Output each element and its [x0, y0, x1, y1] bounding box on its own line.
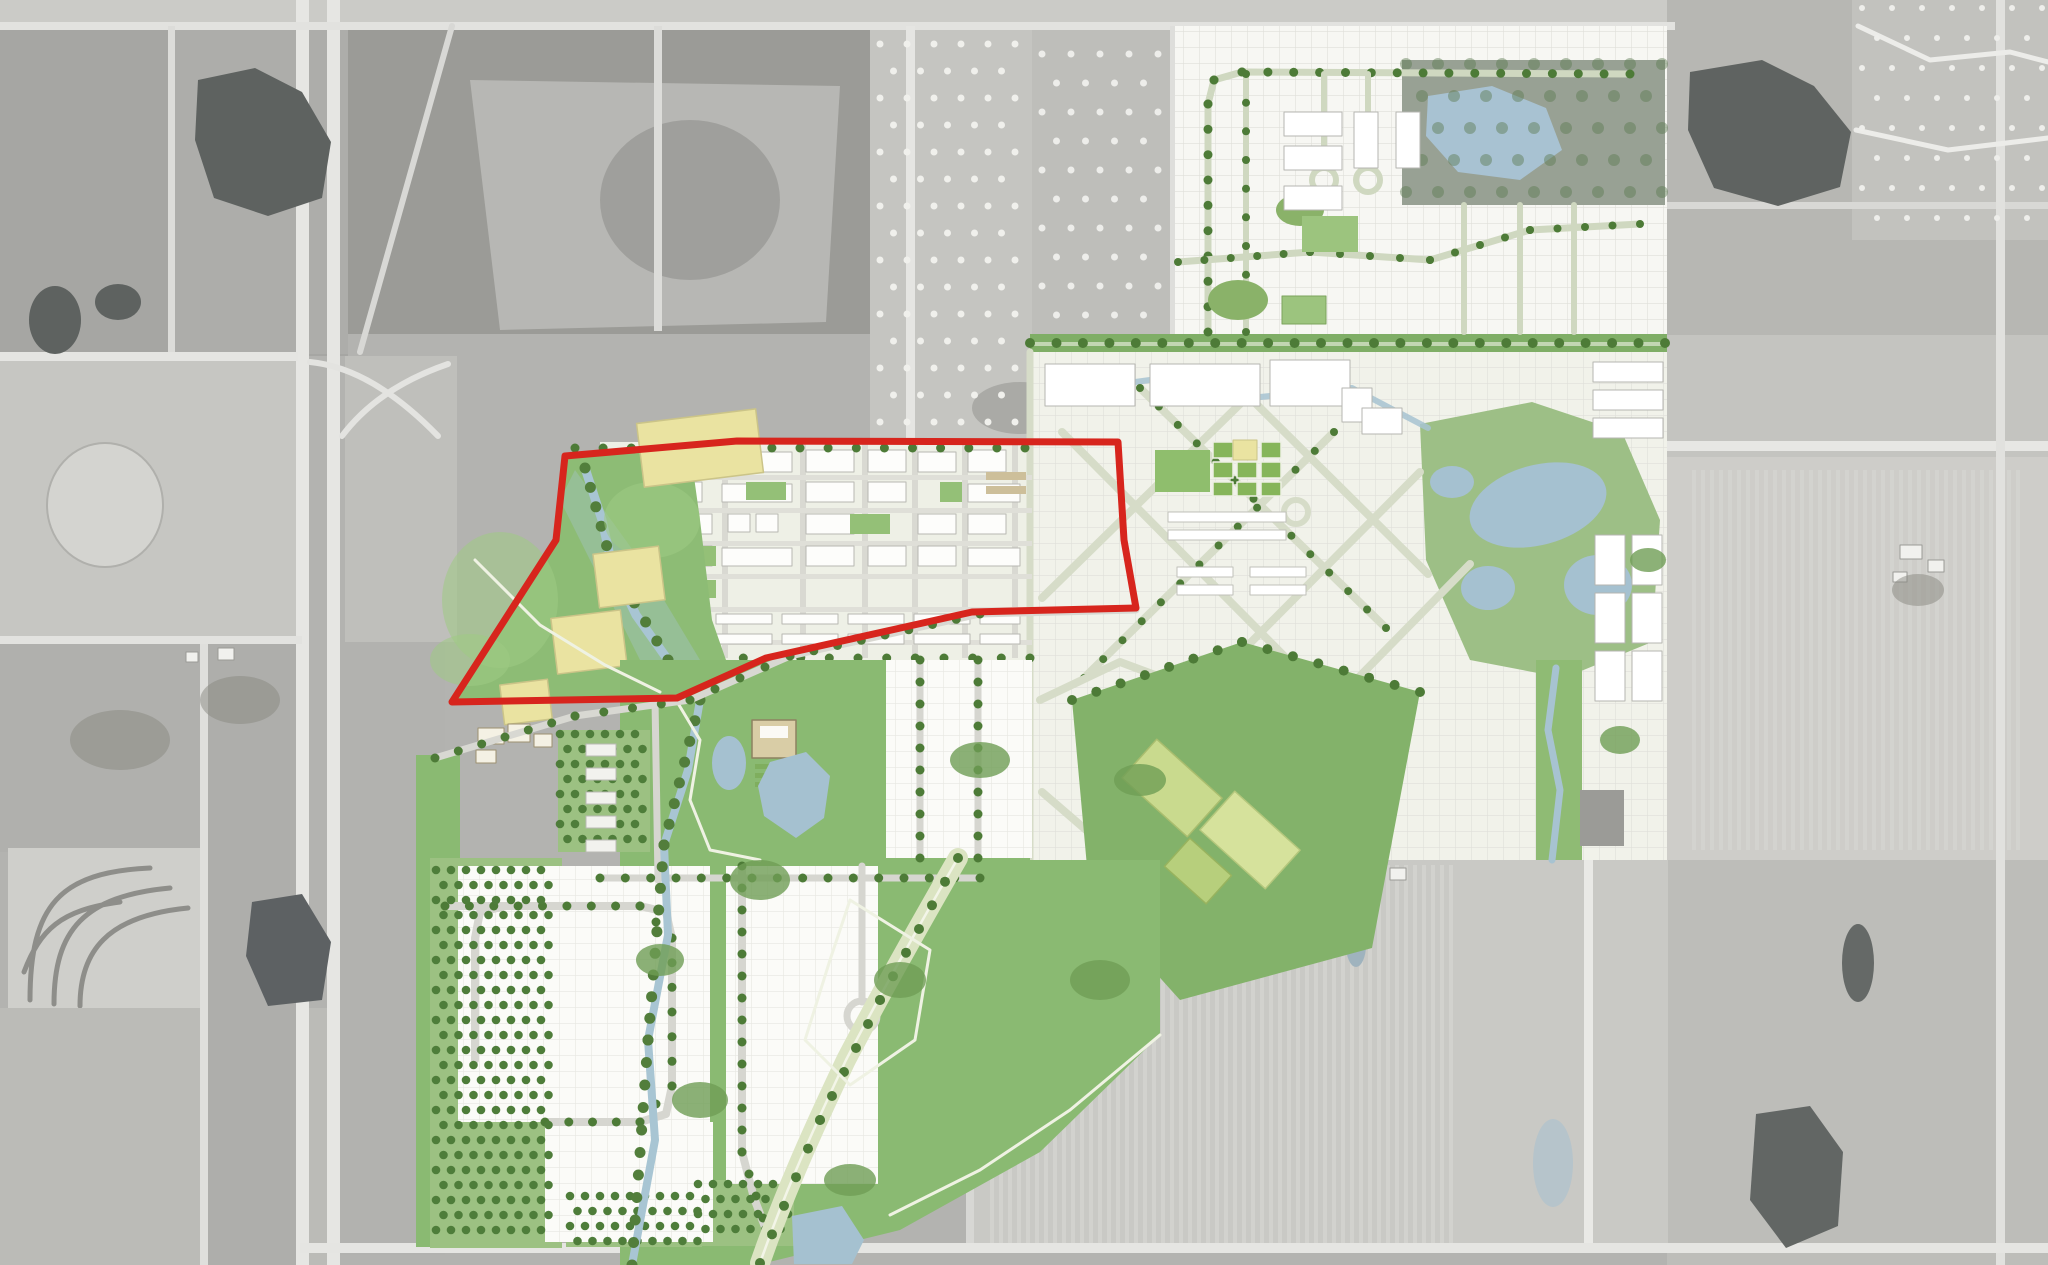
site-plan-screenshot: [0, 0, 2048, 1265]
aerial-farm-circle: [47, 443, 163, 567]
pond-east: [1842, 924, 1874, 1002]
road-town-main: [906, 26, 915, 444]
street-x655: [655, 700, 658, 880]
civic-building-roof: [760, 726, 788, 738]
subdivision-courtyard: [1302, 216, 1358, 252]
map-canvas: [0, 0, 2048, 1265]
reserved-parcel: [1580, 790, 1624, 846]
aerial-e-stripes: [1690, 470, 2020, 850]
map-layers: [0, 0, 2048, 1265]
aerial-e-field1: [1667, 335, 2048, 457]
highway-sb: [327, 0, 340, 1265]
pond-west1: [29, 286, 81, 354]
subdivision-garden: [1282, 296, 1326, 324]
pond-west2: [95, 284, 141, 320]
town-lawn-square: [1155, 450, 1210, 492]
road-far-east: [1996, 0, 2005, 1265]
town-buildings-r3: [652, 514, 1006, 534]
aerial-e-field3: [1667, 860, 2048, 1265]
road-west2: [0, 636, 302, 644]
road-sw-vertical: [200, 644, 208, 1265]
aerial-tilled-dark: [600, 120, 780, 280]
wetland-lagoon4: [1430, 466, 1474, 498]
road-south2: [1584, 860, 1593, 1248]
sports-field-3: [551, 610, 627, 674]
sports-field-village: [1233, 440, 1257, 460]
sports-field-2: [593, 546, 665, 608]
road-north-vertical: [654, 26, 662, 331]
road-northeast: [1667, 202, 2048, 209]
park-pond-1: [712, 736, 746, 790]
wetland-corridor: [1536, 660, 1582, 860]
civic-building: [752, 720, 796, 758]
wetland-lagoon3: [1461, 566, 1515, 610]
pond-south-light: [1533, 1119, 1573, 1207]
road-east: [1667, 441, 2048, 451]
road-nw-vertical: [168, 26, 175, 356]
road-west: [0, 352, 298, 361]
